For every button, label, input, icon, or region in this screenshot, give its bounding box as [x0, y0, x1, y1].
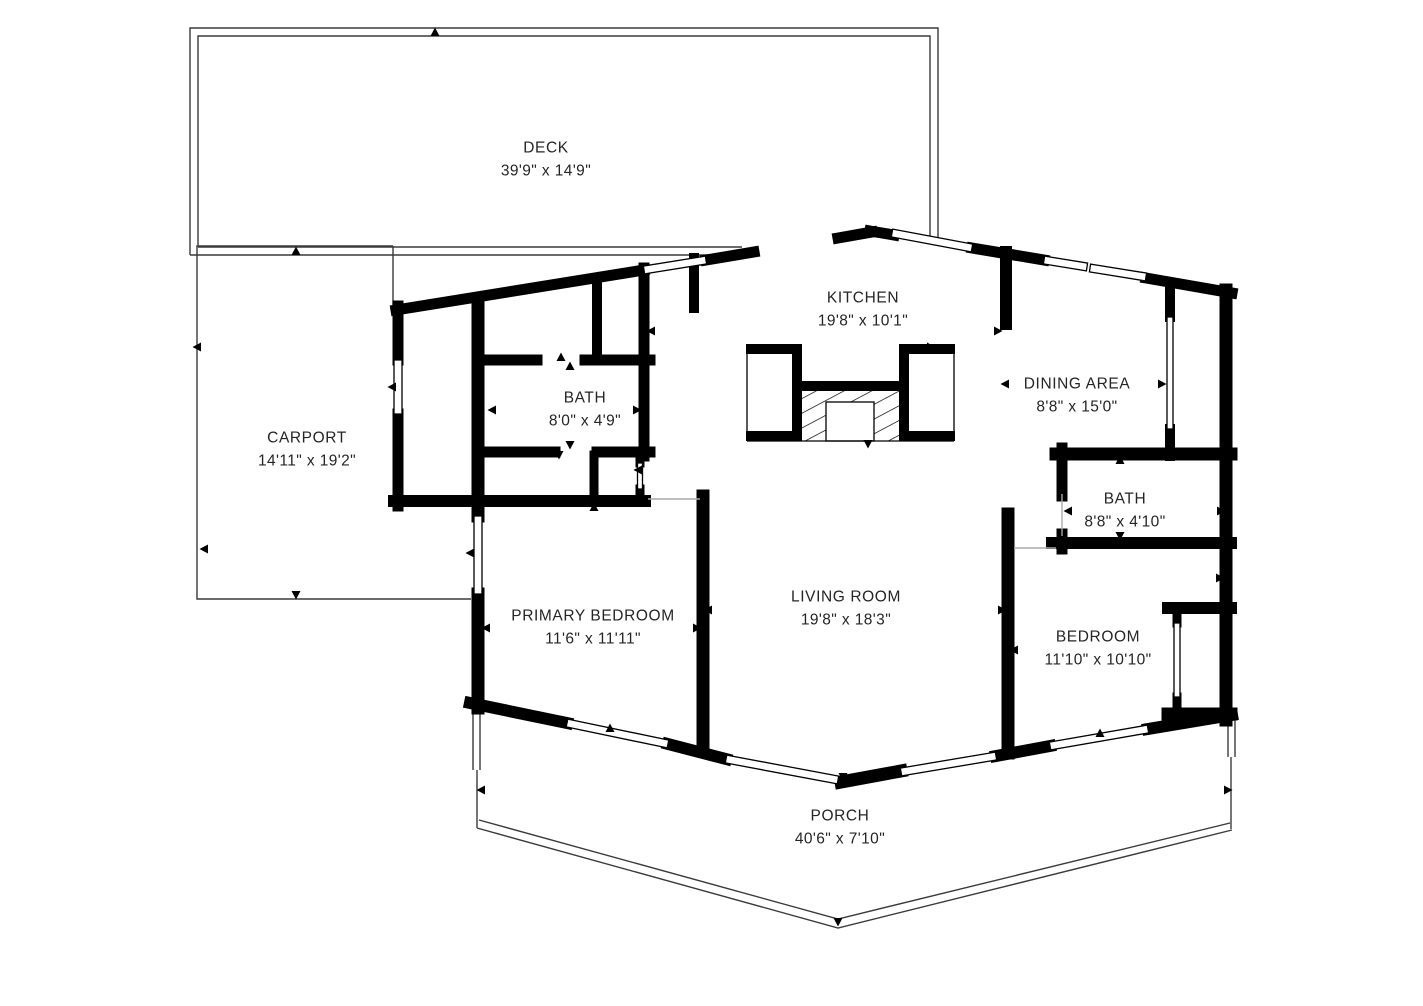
window	[1174, 623, 1180, 697]
window	[566, 719, 669, 748]
dimension-arrow	[566, 441, 575, 450]
dimension-arrow	[864, 440, 873, 449]
dimension-arrow	[200, 545, 209, 554]
dimension-arrows	[193, 28, 1233, 927]
window	[725, 755, 838, 784]
carport-outline	[197, 246, 471, 599]
dimension-arrow	[1158, 380, 1167, 389]
window	[1089, 264, 1146, 281]
wall-openings	[648, 494, 1062, 548]
window	[1167, 317, 1173, 429]
dimension-arrow	[466, 549, 475, 558]
dimension-arrow	[292, 591, 301, 600]
fireplace	[746, 344, 955, 441]
dimension-arrow	[488, 406, 497, 415]
window	[1043, 256, 1087, 271]
deck-outline	[190, 28, 938, 255]
firebox	[826, 402, 874, 441]
window	[891, 229, 972, 252]
dimension-arrow	[388, 383, 397, 392]
floor-plan-drawing	[0, 0, 1423, 1006]
floor-plan: DECK 39'9" x 14'9" CARPORT 14'11" x 19'2…	[0, 0, 1423, 1006]
porch-outline	[473, 707, 1235, 928]
dimension-arrow	[566, 362, 575, 371]
dimension-arrow	[292, 247, 301, 256]
interior-walls	[484, 252, 1231, 753]
dimension-arrow	[1064, 507, 1073, 516]
dimension-arrow	[477, 786, 486, 795]
window	[900, 752, 996, 776]
window	[1049, 725, 1148, 750]
dimension-arrow	[431, 28, 440, 37]
dimension-arrow	[1001, 380, 1010, 389]
window	[474, 516, 482, 594]
dimension-arrow	[834, 918, 843, 927]
dimension-arrow	[557, 353, 566, 362]
